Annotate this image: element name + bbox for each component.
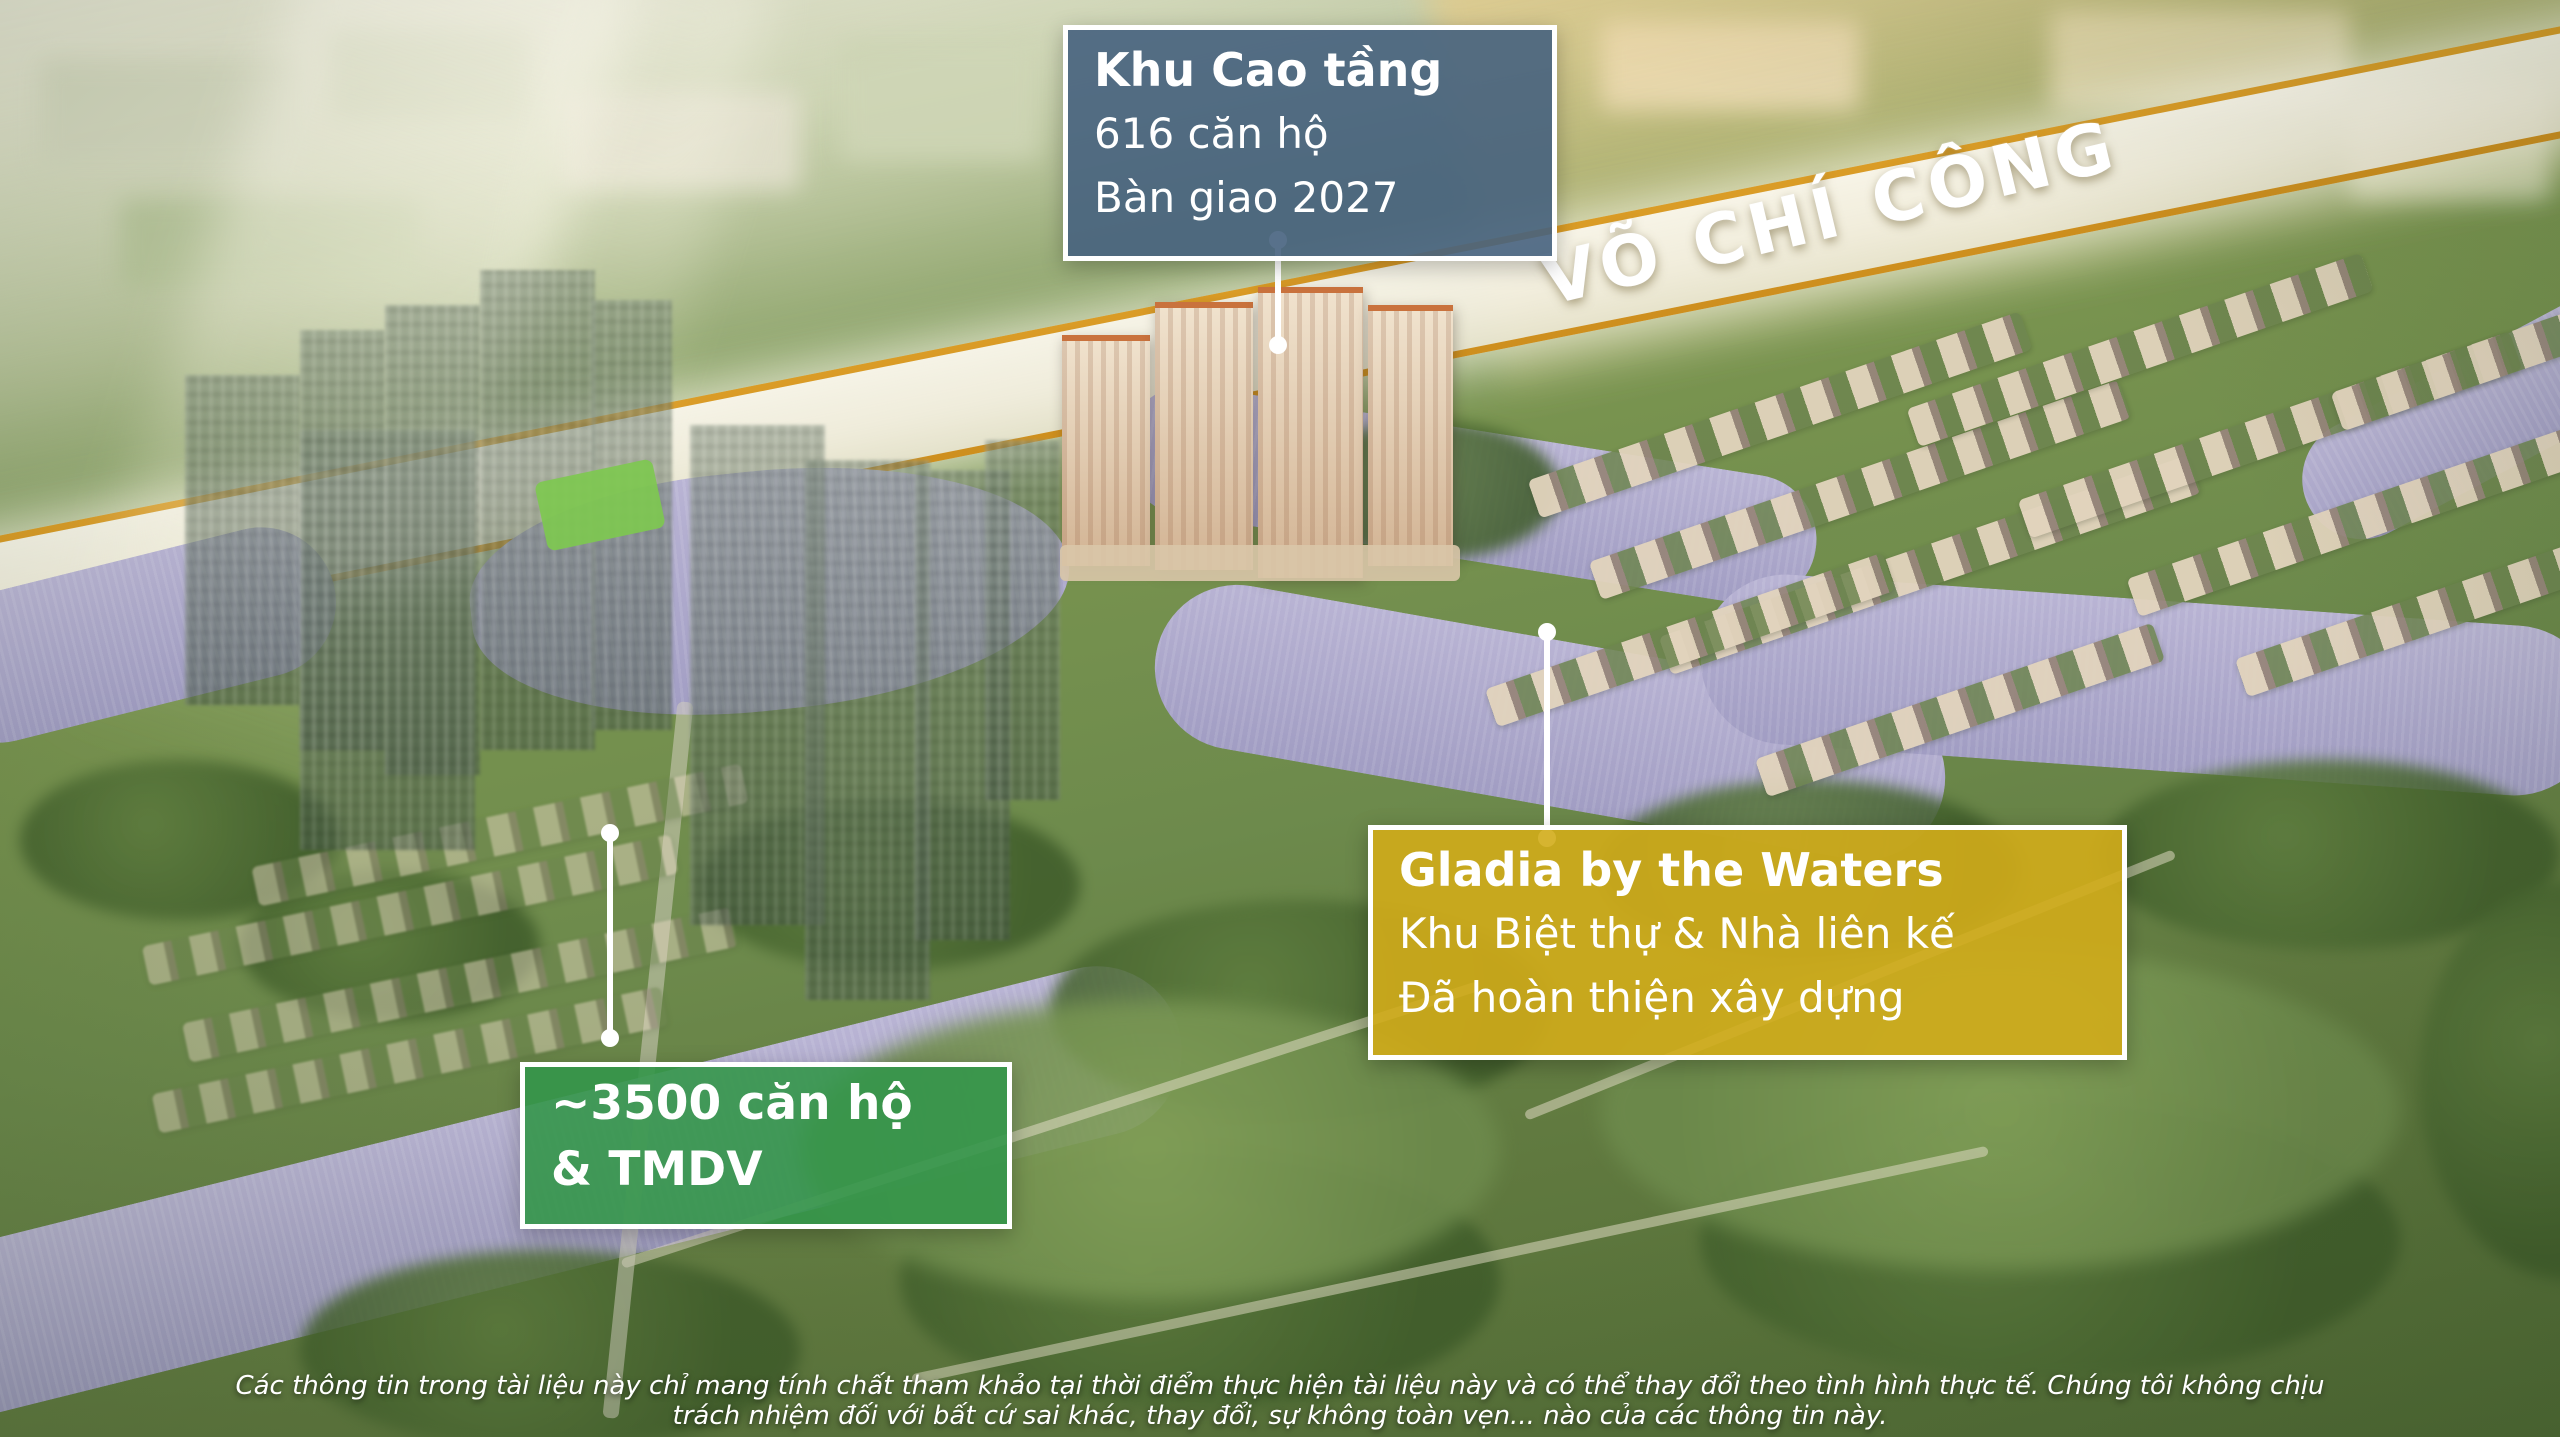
callout-highrise-handover: Bàn giao 2027 [1094,166,1526,230]
callout-gladia-title: Gladia by the Waters [1399,838,2096,902]
callout-future-apartments: ~3500 căn hộ & TMDV [520,1062,1012,1229]
aerial-masterplan-render: VÕ CHÍ CÔNG Khu Cao tầng 616 căn hộ Bàn … [0,0,2560,1437]
callout-gladia-status: Đã hoàn thiện xây dựng [1399,966,2096,1030]
callout-future-tmdv: & TMDV [551,1137,981,1203]
disclaimer-line-1: Các thông tin trong tài liệu này chỉ man… [0,1371,2560,1401]
disclaimer-line-2: trách nhiệm đối với bất cứ sai khác, tha… [0,1401,2560,1431]
callout-future-units: ~3500 căn hộ [551,1071,981,1137]
callout-highrise-title: Khu Cao tầng [1094,38,1526,102]
leader-line-gladia [1544,632,1550,838]
callout-gladia: Gladia by the Waters Khu Biệt thự & Nhà … [1368,825,2127,1060]
disclaimer-text: Các thông tin trong tài liệu này chỉ man… [0,1371,2560,1431]
callout-gladia-type: Khu Biệt thự & Nhà liên kế [1399,902,2096,966]
callout-highrise-units: 616 căn hộ [1094,102,1526,166]
callout-highrise: Khu Cao tầng 616 căn hộ Bàn giao 2027 [1063,25,1557,261]
leader-line-future [607,833,613,1038]
